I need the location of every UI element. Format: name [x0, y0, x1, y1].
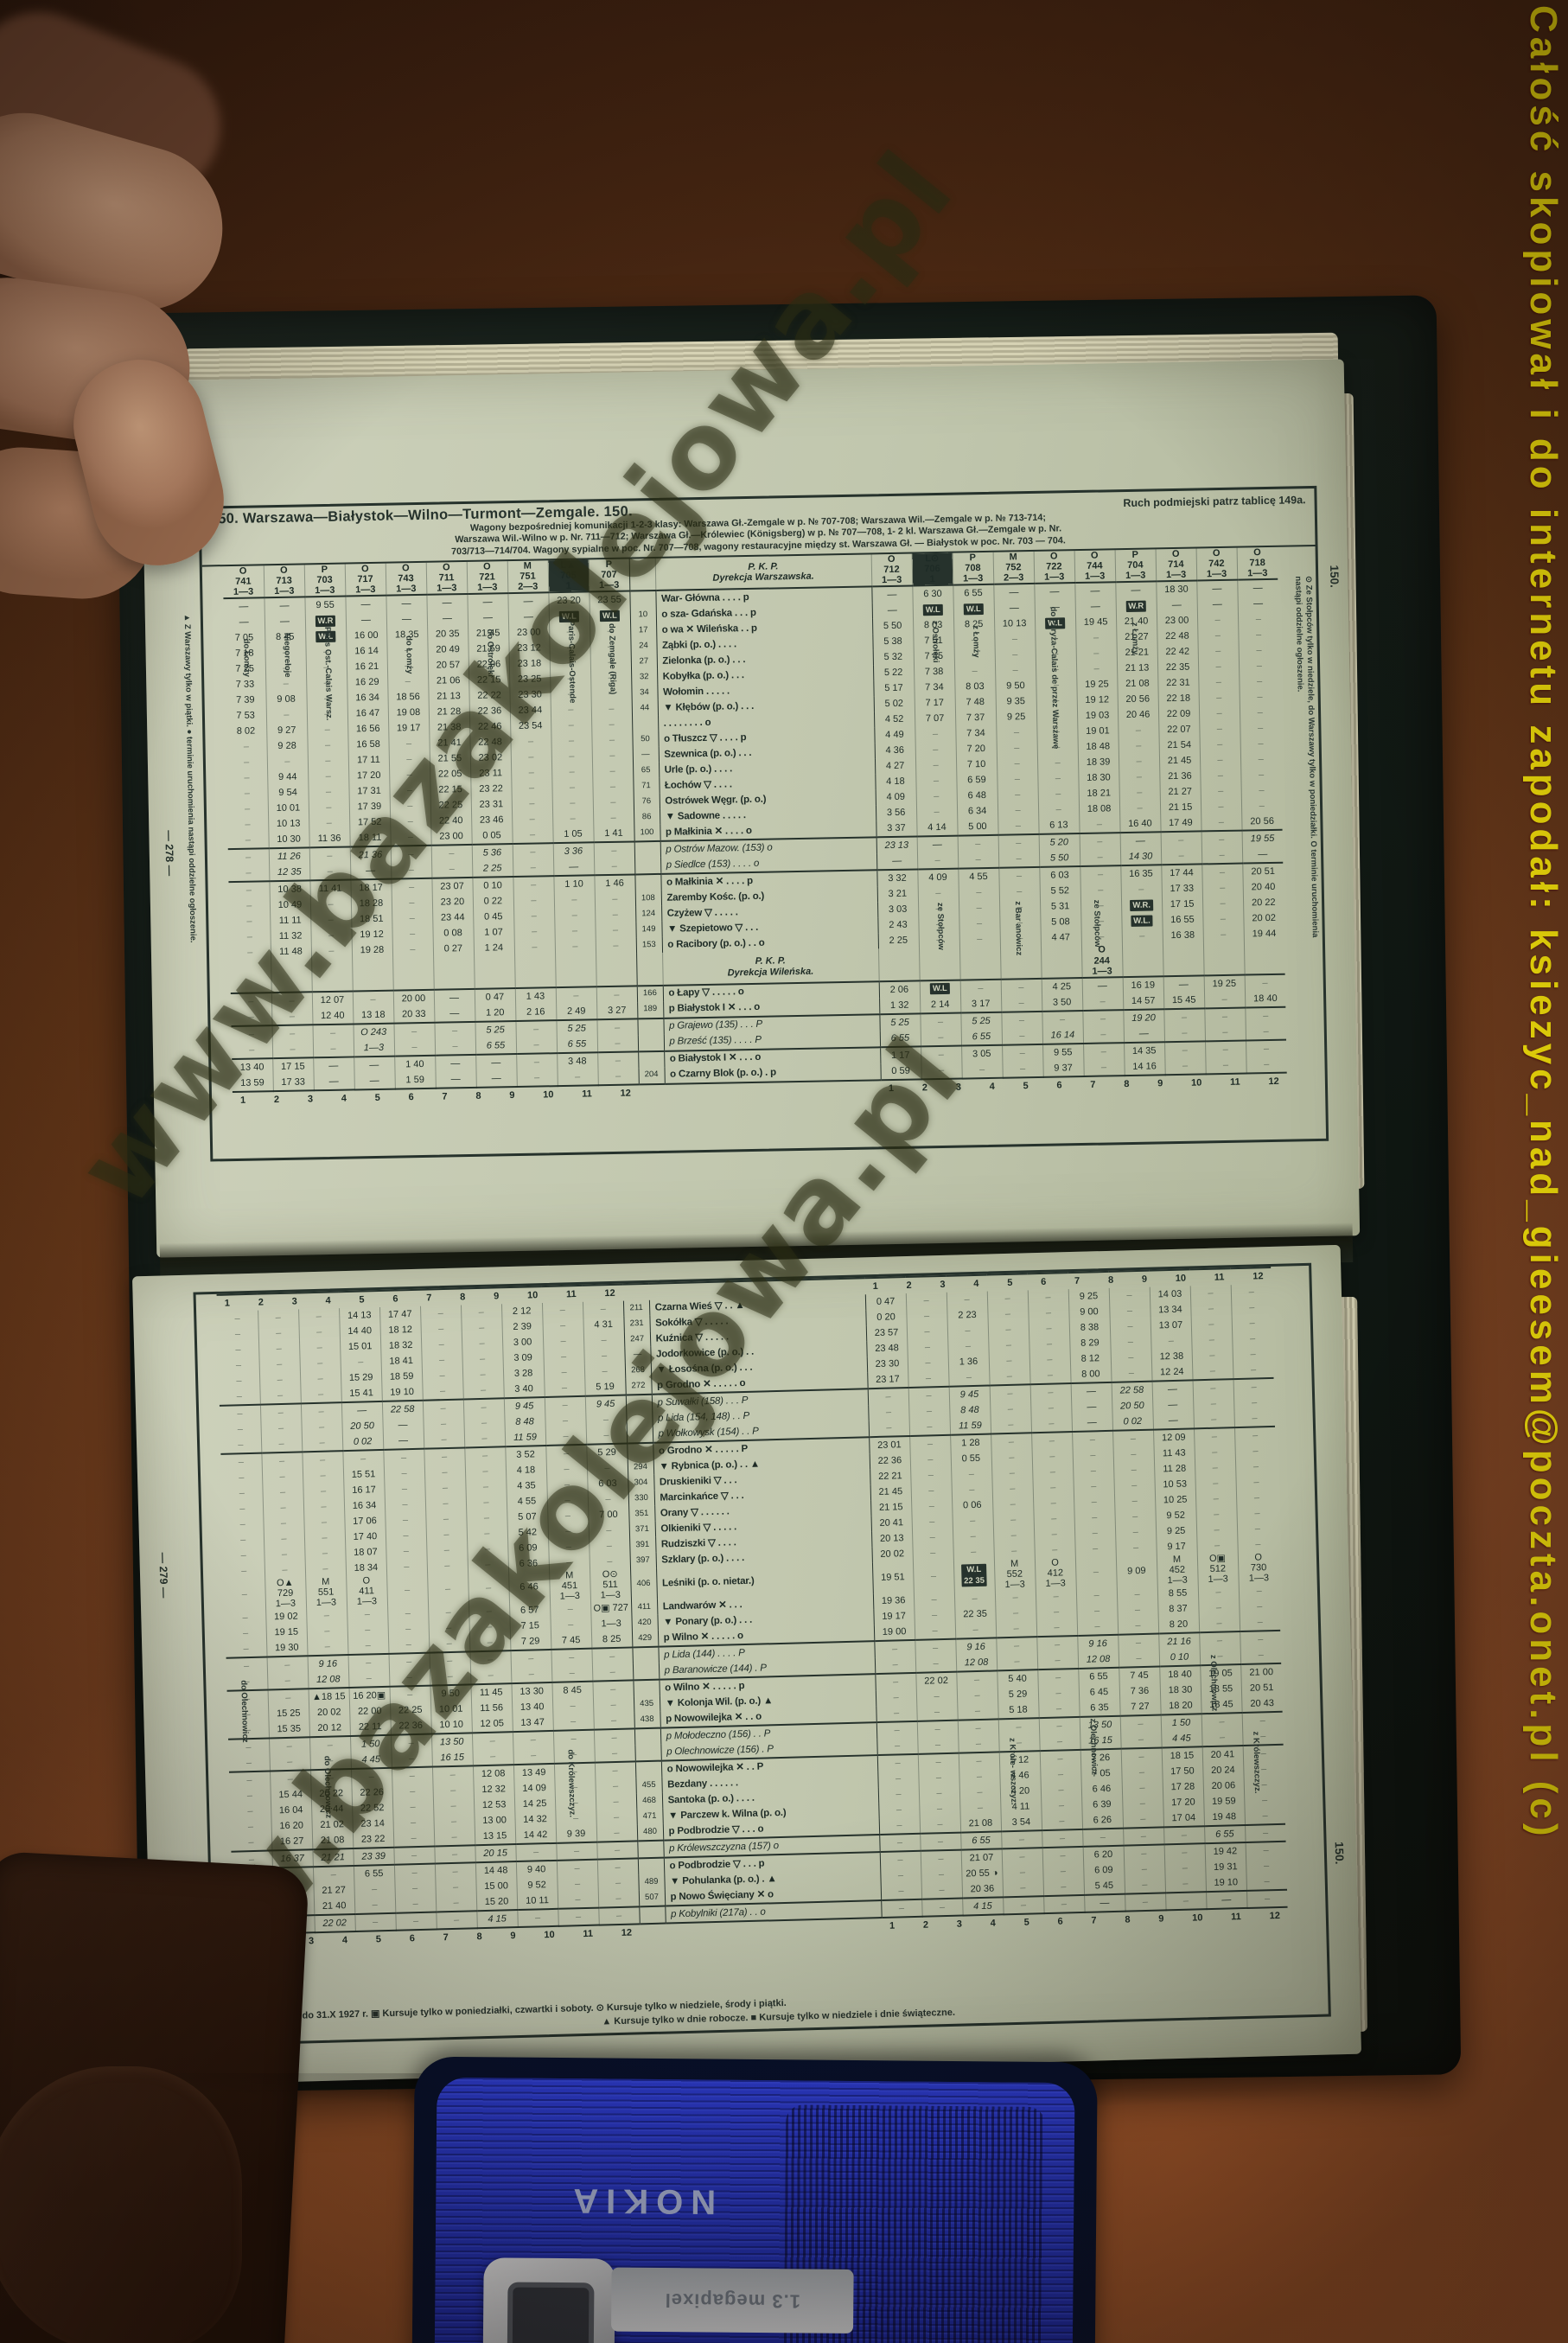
time-cell: –: [1202, 896, 1243, 912]
footnotes: ◑ Postój tylko do 31.X 1927 r. ▣ Kursuje…: [237, 1983, 1319, 2040]
time-cell: –: [1074, 1525, 1115, 1542]
time-cell: –: [1194, 1427, 1234, 1445]
time-cell: 4 49: [874, 727, 915, 744]
route-note-vertical: do Królewszczyz.: [565, 1749, 577, 1817]
time-cell: –: [1123, 1828, 1164, 1846]
time-cell: —: [1237, 579, 1278, 597]
time-cell: –: [1033, 1479, 1074, 1496]
time-cell: 19 20: [1123, 1009, 1163, 1026]
time-cell: 13 49: [513, 1764, 554, 1781]
time-cell: –: [1031, 1432, 1072, 1449]
time-cell: –: [995, 1590, 1036, 1606]
time-cell: –: [592, 748, 633, 764]
time-cell: W.L: [920, 980, 960, 997]
time-cell: –: [558, 1892, 598, 1909]
time-cell: –: [555, 939, 596, 955]
time-cell: 23 48: [866, 1340, 907, 1357]
time-cell: 18 12: [379, 1322, 420, 1338]
time-cell: –: [915, 1639, 955, 1657]
route-note-vertical: do Łomży: [404, 635, 414, 674]
time-cell: 12 53: [474, 1797, 514, 1813]
time-cell: –: [313, 1040, 354, 1057]
time-cell: –: [879, 1834, 921, 1852]
time-cell: 19 25: [1076, 677, 1117, 693]
time-cell: –: [868, 1404, 908, 1420]
time-cell: –: [1235, 1459, 1277, 1475]
time-cell: 6 55: [557, 1036, 597, 1053]
time-cell: 16 55: [1162, 912, 1202, 929]
time-cell: 0 47: [475, 988, 515, 1006]
time-cell: 0 05: [471, 827, 512, 845]
km-cell: 211: [623, 1300, 649, 1317]
time-cell: –: [596, 938, 636, 954]
time-cell: 21 08: [1117, 676, 1157, 693]
time-cell: 20 41: [871, 1515, 912, 1531]
time-cell: –: [1109, 1303, 1150, 1319]
time-cell: –: [1082, 993, 1123, 1011]
time-cell: –: [267, 754, 308, 770]
time-cell: –: [1201, 847, 1242, 865]
time-cell: –: [920, 1816, 960, 1834]
time-cell: –: [1028, 1289, 1068, 1306]
time-cell: 2 25: [472, 860, 513, 878]
time-cell: –: [1082, 1829, 1124, 1847]
time-cell: –: [387, 674, 428, 690]
time-cell: –: [1037, 755, 1078, 771]
time-cell: –: [591, 701, 632, 718]
time-cell: 13 15: [475, 1828, 515, 1845]
time-cell: 13 07: [1151, 1317, 1191, 1333]
time-cell: —: [313, 1057, 354, 1074]
time-cell: –: [461, 1304, 501, 1320]
time-cell: –: [435, 1038, 475, 1056]
time-cell: –: [593, 1697, 634, 1714]
train-header: [474, 955, 515, 988]
time-cell: 8 29: [1069, 1335, 1110, 1351]
time-cell: –: [917, 1737, 958, 1754]
time-cell: 10 01: [268, 801, 309, 817]
time-cell: –: [302, 1434, 342, 1452]
time-cell: –: [1201, 1729, 1242, 1746]
time-cell: 18 30: [1078, 770, 1119, 787]
time-cell: –: [347, 1606, 387, 1623]
time-cell: 2 16: [515, 1004, 556, 1021]
time-cell: –: [906, 1293, 947, 1309]
time-cell: 4 55: [958, 868, 998, 885]
time-cell: 19 59: [1203, 1793, 1244, 1810]
time-cell: –: [1076, 646, 1117, 662]
time-cell: –: [221, 1470, 262, 1486]
time-cell: –: [998, 818, 1038, 835]
km-cell: 50: [632, 731, 658, 748]
time-cell: –: [907, 1339, 947, 1356]
time-cell: –: [1118, 1634, 1158, 1651]
time-cell: –: [268, 1689, 309, 1707]
time-cell: –: [1123, 1811, 1163, 1829]
time-cell: –: [1199, 690, 1240, 706]
time-cell: –: [917, 1721, 958, 1738]
time-cell: –: [1195, 1459, 1235, 1476]
time-cell: –: [592, 763, 633, 780]
time-cell: –: [385, 1512, 425, 1529]
time-cell: –: [596, 1825, 638, 1842]
time-cell: –: [261, 1452, 302, 1469]
time-cell: –: [543, 1333, 583, 1350]
time-cell: —: [1196, 580, 1237, 597]
time-cell: 19 55: [1242, 830, 1283, 847]
time-cell: 9 25: [1068, 1288, 1109, 1305]
time-cell: –: [1037, 1669, 1078, 1686]
time-cell: –: [259, 1371, 300, 1388]
time-cell: 0 47: [865, 1293, 906, 1310]
time-cell: –: [914, 1592, 954, 1608]
time-cell: 20 50: [1112, 1398, 1152, 1414]
time-cell: –: [1118, 723, 1158, 739]
time-cell: –: [914, 1607, 954, 1624]
time-cell: –: [957, 1688, 998, 1704]
time-cell: 20 36: [962, 1881, 1003, 1899]
time-cell: –: [1074, 1541, 1115, 1557]
time-cell: –: [421, 1352, 462, 1369]
time-cell: –: [1196, 1522, 1237, 1538]
time-cell: 8 55: [1157, 1586, 1198, 1602]
time-cell: 2 39: [501, 1318, 542, 1335]
time-cell: W.L22 35: [953, 1559, 995, 1591]
time-cell: –: [1074, 1494, 1114, 1510]
route-note-vertical: do Łomży: [241, 639, 252, 678]
time-cell: –: [592, 1664, 634, 1682]
time-cell: W.L: [913, 602, 953, 618]
time-cell: –: [301, 1402, 341, 1420]
time-cell: 1 59: [395, 1071, 436, 1089]
train-header: O7211—3: [467, 561, 508, 594]
time-cell: –: [465, 1463, 506, 1479]
time-cell: 6 35: [1079, 1700, 1119, 1717]
time-cell: 8 02: [226, 724, 266, 740]
time-cell: 21 13: [1117, 661, 1157, 677]
time-cell: 7 36: [1119, 1683, 1160, 1700]
table-title-note: Ruch podmiejski patrz tablicę 149a.: [1123, 494, 1305, 509]
time-cell: –: [263, 1515, 303, 1531]
time-cell: –: [997, 756, 1037, 772]
time-cell: 19 10: [381, 1384, 422, 1401]
time-cell: 6 13: [1038, 817, 1079, 834]
km-cell: 32: [631, 669, 657, 686]
time-cell: –: [878, 1802, 919, 1818]
time-cell: –: [299, 1339, 340, 1356]
time-cell: 2 43: [877, 917, 918, 934]
time-cell: –: [1235, 1474, 1277, 1491]
time-cell: –: [1201, 1713, 1242, 1730]
time-cell: 6 39: [1081, 1797, 1122, 1813]
time-cell: –: [998, 867, 1039, 884]
time-cell: –: [551, 780, 592, 796]
time-cell: –: [1245, 1808, 1286, 1825]
km-cell: [632, 1647, 658, 1664]
time-cell: –: [954, 1591, 995, 1607]
time-cell: –: [226, 1625, 266, 1642]
train-header: P7081—3: [953, 552, 994, 585]
time-cell: 22 58: [1112, 1382, 1152, 1399]
time-cell: –: [958, 1736, 998, 1753]
route-note-vertical: Niegorełoje: [282, 633, 292, 678]
time-cell: –: [912, 1529, 953, 1546]
time-cell: –: [1195, 1506, 1236, 1523]
time-cell: 7 07: [915, 711, 955, 727]
time-cell: 20 51: [1242, 863, 1283, 880]
time-cell: –: [921, 1850, 961, 1867]
time-cell: 6 55: [1204, 1825, 1246, 1843]
time-cell: –: [464, 1430, 505, 1447]
time-cell: –: [1043, 1895, 1085, 1913]
time-cell: –: [592, 779, 633, 795]
train-header: [1203, 942, 1245, 975]
time-cell: 23 01: [869, 1436, 909, 1453]
time-cell: 16 21: [347, 659, 387, 675]
time-cell: 9 39: [556, 1826, 596, 1843]
time-cell: 9 00: [1068, 1304, 1109, 1320]
km-cell: 489: [638, 1874, 664, 1891]
km-cell: 86: [634, 809, 660, 826]
time-cell: 20 35: [427, 626, 468, 642]
time-cell: –: [875, 1657, 915, 1674]
time-cell: –: [597, 1068, 638, 1085]
time-cell: –: [595, 923, 635, 939]
time-cell: –: [909, 1435, 950, 1452]
time-cell: –: [342, 1450, 383, 1467]
time-cell: –: [999, 884, 1040, 900]
train-header: O7141—3: [1156, 549, 1197, 582]
time-cell: –: [266, 707, 307, 724]
time-cell: —: [1206, 1891, 1247, 1909]
time-cell: 6 48: [957, 788, 998, 804]
page-number: — 278 —: [163, 830, 175, 876]
time-cell: –: [920, 1833, 961, 1851]
time-cell: 16 29: [347, 674, 387, 691]
time-cell: –: [394, 1880, 435, 1897]
time-cell: –: [1117, 1602, 1157, 1618]
time-cell: –: [220, 1421, 260, 1438]
time-cell: –: [557, 1876, 597, 1893]
time-cell: –: [1122, 929, 1163, 945]
time-cell: –: [1239, 674, 1279, 690]
time-cell: 12 32: [473, 1781, 513, 1797]
time-cell: —: [1120, 833, 1161, 850]
time-cell: 21 15: [1160, 800, 1201, 816]
time-cell: 0 06: [952, 1497, 992, 1513]
time-cell: 6 59: [956, 772, 997, 788]
time-cell: –: [1037, 1652, 1078, 1669]
time-cell: 4 15: [476, 1910, 518, 1928]
time-cell: –: [1001, 979, 1042, 996]
time-cell: —: [1197, 597, 1238, 613]
time-cell: –: [947, 1338, 988, 1355]
time-cell: –: [463, 1414, 504, 1431]
time-cell: 18 21: [1079, 786, 1119, 802]
time-cell: —: [346, 612, 386, 629]
time-cell: –: [433, 1798, 474, 1815]
time-cell: –: [1073, 1463, 1113, 1479]
time-cell: —: [427, 610, 468, 627]
train-header: [596, 954, 637, 986]
time-cell: 22 07: [1158, 722, 1199, 738]
time-cell: –: [918, 1753, 959, 1771]
time-cell: –: [423, 1415, 463, 1432]
time-cell: 22 21: [870, 1468, 910, 1484]
time-cell: –: [1032, 1448, 1073, 1465]
time-cell: 18 15: [1162, 1747, 1202, 1765]
time-cell: 5 08: [1040, 914, 1080, 930]
time-cell: –: [1246, 1039, 1286, 1057]
time-cell: –: [1194, 1411, 1234, 1428]
time-cell: –: [511, 781, 551, 797]
time-cell: 4 09: [876, 789, 916, 806]
time-cell: —: [382, 1417, 423, 1433]
train-header: O7171—3: [345, 564, 386, 597]
time-cell: –: [959, 884, 999, 901]
time-cell: 13 18: [353, 1006, 393, 1024]
time-cell: –: [462, 1350, 502, 1367]
time-cell: –: [1193, 1379, 1233, 1396]
time-cell: 22 48: [1157, 629, 1197, 645]
time-cell: 17 47: [379, 1306, 420, 1323]
time-cell: –: [876, 1689, 916, 1706]
time-cell: 19 44: [1244, 926, 1284, 942]
time-cell: –: [1199, 1631, 1240, 1649]
time-cell: –: [877, 1754, 918, 1772]
time-cell: 19 15: [266, 1625, 307, 1641]
time-cell: –: [513, 844, 553, 861]
route-note-vertical: z Ostrołęki: [930, 621, 940, 663]
time-cell: 15 45: [1163, 992, 1204, 1009]
time-cell: –: [218, 1357, 258, 1374]
time-cell: 21 08: [960, 1816, 1001, 1833]
time-cell: –: [596, 1794, 637, 1810]
time-cell: –: [959, 1784, 1000, 1801]
time-cell: 1 50: [1161, 1714, 1201, 1732]
time-cell: –: [1237, 1521, 1278, 1537]
time-cell: –: [1075, 1556, 1117, 1588]
time-cell: –: [1114, 1509, 1155, 1525]
time-cell: —: [436, 1071, 476, 1089]
time-cell: –: [424, 1479, 465, 1496]
time-cell: –: [1244, 1777, 1285, 1793]
km-cell: 420: [632, 1615, 658, 1631]
time-cell: 14 42: [515, 1827, 556, 1844]
time-cell: 18 40: [1159, 1666, 1200, 1683]
time-cell: 0 27: [433, 941, 474, 957]
time-cell: 12 24: [1151, 1363, 1192, 1381]
time-cell: –: [1110, 1318, 1151, 1335]
time-cell: –: [917, 852, 958, 870]
train-header: [1163, 943, 1204, 976]
time-cell: –: [305, 1561, 346, 1577]
time-cell: –: [1231, 1299, 1272, 1316]
time-cell: –: [224, 1563, 265, 1580]
time-cell: –: [909, 1419, 950, 1436]
time-cell: 9 54: [267, 785, 308, 801]
time-cell: 19 12: [1077, 693, 1118, 709]
train-header: O7411—3: [223, 565, 265, 598]
time-cell: –: [1109, 1287, 1150, 1304]
time-cell: –: [1073, 1447, 1113, 1464]
time-cell: –: [554, 908, 595, 924]
time-cell: 13 50: [1080, 1716, 1120, 1733]
time-cell: 14 32: [514, 1811, 555, 1828]
time-cell: –: [1190, 1285, 1231, 1301]
time-cell: 0 45: [473, 909, 513, 925]
time-cell: —: [265, 614, 305, 630]
time-cell: 20 51: [1241, 1680, 1283, 1696]
time-cell: –: [987, 1290, 1028, 1306]
time-cell: –: [1198, 674, 1239, 691]
time-cell: —: [1152, 1380, 1193, 1397]
time-cell: –: [915, 773, 956, 789]
time-cell: O▲7291—3: [265, 1577, 306, 1609]
time-cell: 23 00: [1157, 613, 1197, 629]
time-cell: –: [1041, 1782, 1081, 1798]
time-cell: –: [393, 1847, 435, 1865]
time-cell: –: [1190, 1300, 1231, 1317]
time-cell: 1 24: [474, 940, 514, 956]
time-cell: 6 26: [1082, 1812, 1123, 1829]
time-cell: –: [1119, 769, 1159, 786]
time-cell: –: [1246, 1056, 1286, 1073]
time-cell: 19 48: [1204, 1809, 1245, 1826]
time-cell: –: [1113, 1446, 1154, 1463]
km-cell: 204: [638, 1068, 664, 1085]
time-cell: –: [551, 1649, 591, 1666]
time-cell: –: [1164, 1860, 1205, 1876]
time-cell: –: [953, 1528, 993, 1544]
time-cell: –: [218, 1326, 258, 1343]
time-cell: 8 00: [1070, 1366, 1111, 1383]
time-cell: –: [1002, 1848, 1042, 1865]
time-cell: —: [1124, 1025, 1164, 1043]
time-cell: –: [1243, 1761, 1284, 1778]
time-cell: 19 25: [1204, 974, 1245, 992]
time-cell: 4 18: [875, 774, 915, 790]
time-cell: –: [996, 1620, 1036, 1638]
page-278: 150. Warszawa—Białystok—Wilno—Turmont—Ze…: [141, 359, 1360, 1257]
time-cell: –: [420, 1306, 461, 1322]
time-cell: —: [224, 615, 265, 631]
route-note-vertical: z Króle- wszczyz.: [1007, 1738, 1018, 1805]
time-cell: 4 36: [875, 743, 915, 759]
time-cell: –: [881, 1899, 922, 1918]
time-cell: –: [998, 851, 1039, 868]
time-cell: –: [1245, 974, 1285, 991]
time-cell: 18 39: [1078, 755, 1119, 771]
time-cell: –: [226, 755, 267, 771]
time-cell: —: [314, 1073, 354, 1090]
time-cell: –: [229, 1772, 270, 1789]
time-cell: –: [1203, 927, 1244, 943]
time-cell: 8 25: [591, 1631, 633, 1649]
time-cell: –: [1241, 782, 1282, 799]
time-cell: –: [422, 1382, 462, 1400]
time-cell: –: [424, 1431, 464, 1448]
time-cell: W.R.: [1121, 897, 1162, 914]
time-cell: 23 30: [867, 1356, 908, 1372]
time-cell: –: [1039, 1717, 1080, 1734]
time-cell: –: [552, 795, 593, 812]
time-cell: –: [304, 1545, 345, 1561]
time-cell: –: [543, 1349, 583, 1365]
time-cell: –: [1240, 720, 1280, 737]
time-cell: 3 37: [876, 820, 916, 838]
time-cell: 20 22: [1243, 895, 1284, 911]
